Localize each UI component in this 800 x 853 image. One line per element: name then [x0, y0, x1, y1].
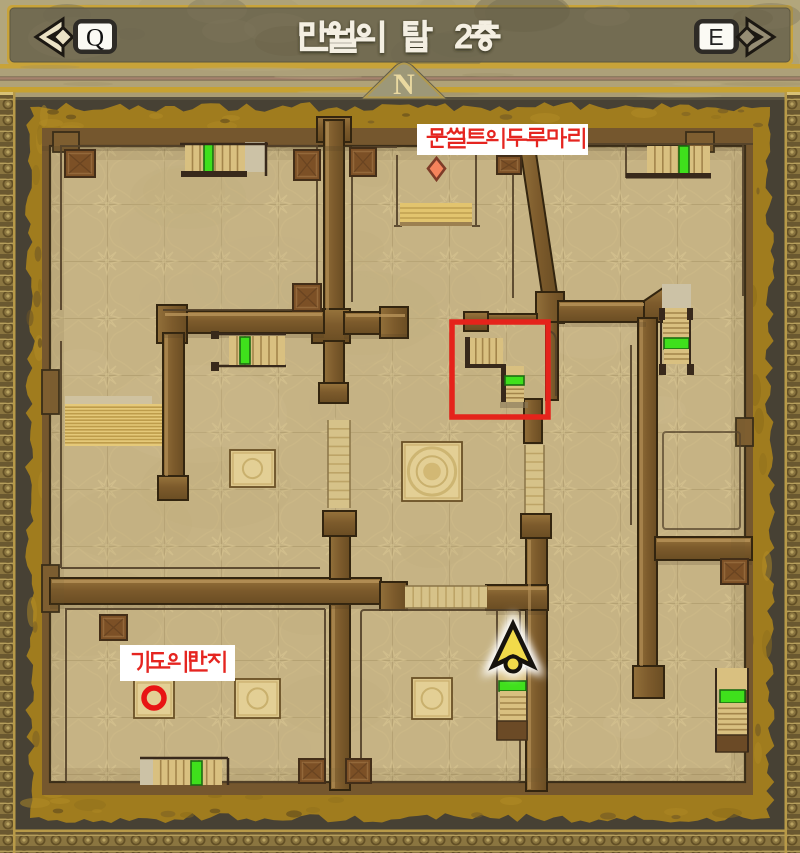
- svg-text:N: N: [393, 68, 415, 101]
- svg-text:Q: Q: [86, 25, 104, 52]
- svg-text:E: E: [708, 24, 723, 50]
